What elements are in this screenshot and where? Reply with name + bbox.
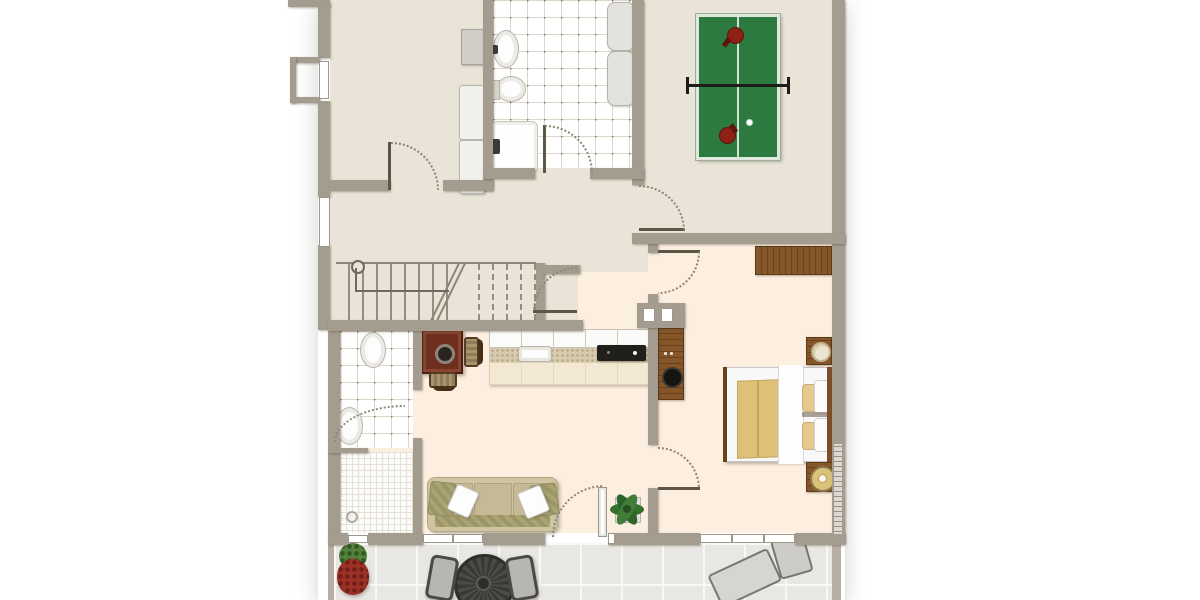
floor-plan: [0, 0, 1200, 600]
stair-tread-dashed: [506, 264, 508, 320]
bathroom-bench: [607, 51, 635, 106]
door-leaf: [388, 142, 391, 190]
ball-icon: [746, 119, 753, 126]
cabinet-knob: [664, 352, 667, 355]
ping-pong-net-post: [787, 77, 790, 94]
ping-pong-net-post: [686, 77, 689, 94]
wall: [648, 488, 658, 533]
kitchen-base-cabinets: [489, 362, 651, 385]
window: [319, 61, 329, 99]
patio-edge: [832, 543, 841, 600]
utility-window: [643, 308, 655, 322]
window: [348, 535, 368, 543]
white-wardrobe: [459, 85, 485, 140]
wall: [368, 533, 423, 545]
stair-tread-dashed: [520, 264, 522, 320]
wall: [318, 101, 330, 197]
wall: [608, 533, 700, 545]
gray-cabinet: [461, 29, 484, 65]
wicker-table-center: [476, 576, 491, 591]
wall-shelf: [755, 246, 832, 275]
wall: [590, 168, 644, 179]
flower-pot: [335, 543, 371, 595]
bed-sheet-runner: [778, 365, 804, 464]
wall: [328, 533, 348, 545]
double-bed: [723, 367, 832, 462]
toilet-cistern: [492, 80, 500, 100]
dining-chair: [464, 337, 479, 367]
potted-plant-icon: [610, 492, 644, 526]
cooktop-knob: [633, 351, 637, 355]
wall: [483, 168, 535, 179]
wall: [318, 245, 330, 330]
patio-edge: [328, 543, 334, 600]
stair-tread-dashed: [478, 264, 480, 320]
wall: [632, 0, 644, 185]
wall: [648, 243, 658, 253]
watermark-strip: [834, 444, 842, 534]
window-well: [290, 97, 320, 103]
wall: [413, 438, 422, 533]
bathroom-bench: [607, 2, 635, 51]
dining-chair-back: [433, 386, 455, 391]
stair-handrail: [355, 268, 357, 292]
wall: [318, 4, 330, 58]
wall: [795, 533, 845, 545]
table-centerpiece: [435, 344, 455, 364]
wall: [413, 331, 422, 390]
dining-chair-back: [478, 339, 483, 365]
wall: [330, 180, 390, 191]
cooktop: [597, 345, 646, 361]
bed-footboard: [723, 367, 727, 462]
bed-blanket: [737, 379, 779, 458]
window: [423, 534, 483, 543]
table-lamp-center: [818, 474, 827, 483]
ping-pong-net: [688, 84, 789, 87]
cabinet-knob: [670, 352, 673, 355]
wall: [328, 320, 583, 331]
stair-handrail: [355, 290, 449, 292]
shell-decor-icon: [811, 342, 831, 362]
shower-drain: [346, 511, 358, 523]
cabinet-bowl: [662, 367, 683, 388]
window: [700, 534, 795, 543]
door-jamb: [608, 533, 615, 544]
plant-center: [623, 505, 631, 513]
stair-tread-dashed: [492, 264, 494, 320]
toilet: [496, 76, 526, 102]
sofa-cushion: [474, 483, 512, 517]
stair-newel-post: [351, 260, 365, 274]
wall: [328, 448, 368, 453]
wall: [483, 0, 493, 190]
wardrobe-cabinet: [658, 328, 684, 400]
wall: [483, 533, 545, 545]
cooktop-knob: [607, 351, 610, 354]
utility-window: [661, 308, 673, 322]
kitchen-sink: [518, 346, 552, 362]
window: [319, 197, 330, 247]
wall: [443, 180, 493, 191]
wall: [632, 233, 845, 244]
toilet: [360, 332, 386, 368]
flower-blooms: [337, 559, 369, 595]
sofa: [427, 477, 558, 532]
